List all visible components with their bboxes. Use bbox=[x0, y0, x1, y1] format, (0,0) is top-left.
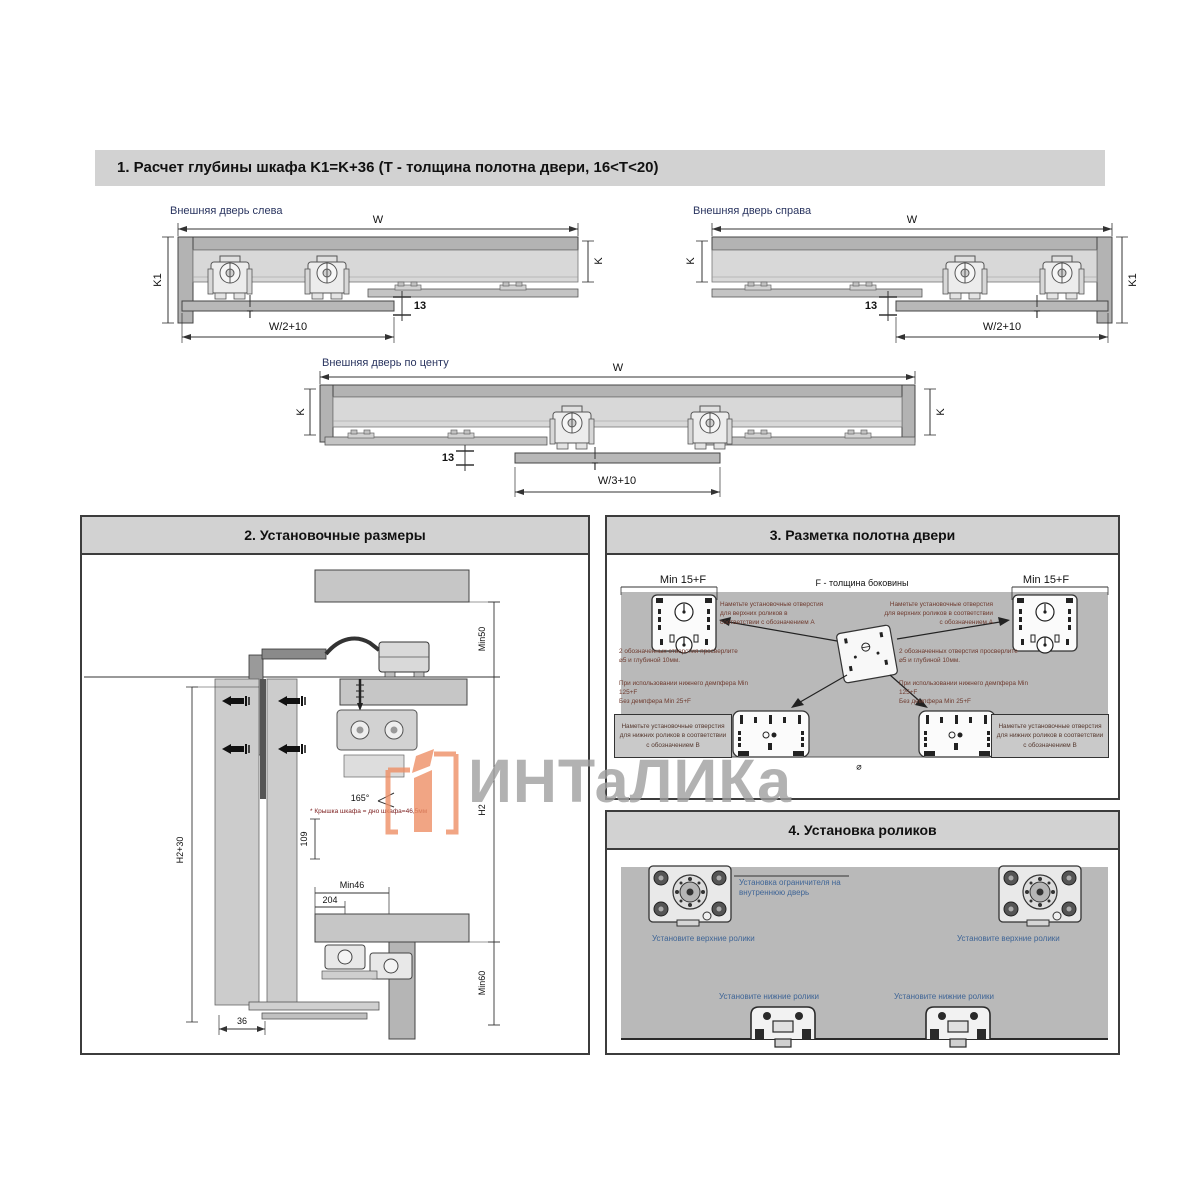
note-mark-top-left: Наметьте установочные отверстия для верх… bbox=[720, 601, 828, 628]
dim-109: 109 bbox=[299, 831, 309, 846]
section4-title: 4. Установка роликов bbox=[788, 822, 936, 838]
dim-k1: K1 bbox=[1127, 273, 1139, 286]
damper-line1: При использовании нижнего демпфера Min 1… bbox=[899, 680, 1028, 696]
dim-k: K bbox=[685, 257, 697, 264]
section4-header: 4. Установка роликов bbox=[607, 812, 1118, 850]
dim-h2-30: H2+30 bbox=[175, 837, 185, 864]
dim-min50: Min50 bbox=[477, 627, 487, 652]
section3-drawing bbox=[607, 555, 1118, 800]
dim-w2-10: W/2+10 bbox=[983, 321, 1021, 333]
dim-165: 165° bbox=[351, 793, 370, 803]
note-mark-top-right: Наметьте установочные отверстия для верх… bbox=[883, 601, 993, 628]
damper-line1: При использовании нижнего демпфера Min 1… bbox=[619, 680, 748, 696]
diagram-center-label: Внешняя дверь по центу bbox=[322, 357, 449, 369]
dim-min60: Min60 bbox=[477, 971, 487, 996]
section2-header: 2. Установочные размеры bbox=[82, 517, 588, 555]
dim-h2: H2 bbox=[477, 804, 487, 816]
section2-box: 2. Установочные размеры bbox=[80, 515, 590, 1055]
dim-13: 13 bbox=[442, 452, 454, 464]
diagram-door-right-drawing bbox=[675, 205, 1140, 363]
dim-w: W bbox=[613, 362, 623, 374]
section4-box: 4. Установка роликов Установка ограничит… bbox=[605, 810, 1120, 1055]
dim-w: W bbox=[373, 214, 383, 226]
diagram-door-right: Внешняя дверь справа W K K1 13 T W/2+10 bbox=[675, 205, 1140, 363]
section2-drawing bbox=[82, 555, 588, 1055]
section1-title: 1. Расчет глубины шкафа K1=K+36 (Т - тол… bbox=[117, 159, 659, 176]
dim-13: 13 bbox=[414, 300, 426, 312]
dim-204: 204 bbox=[322, 895, 337, 905]
upper-rollers-left: Установите верхние ролики bbox=[652, 934, 787, 944]
diagram-left-label: Внешняя дверь слева bbox=[170, 205, 282, 217]
diagram-right-label: Внешняя дверь справа bbox=[693, 205, 811, 217]
limiter-note: Установка ограничителя на внутреннюю две… bbox=[739, 878, 869, 899]
section3-header: 3. Разметка полотна двери bbox=[607, 517, 1118, 555]
dim-w3-10: W/3+10 bbox=[598, 475, 636, 487]
note-damper-right: При использовании нижнего демпфера Min 1… bbox=[899, 680, 1031, 707]
dim-min15f-right: Min 15+F bbox=[1023, 574, 1069, 586]
dim-k-left: K bbox=[295, 408, 307, 415]
f-thickness-note: F - толщина боковины bbox=[816, 578, 909, 588]
diameter-symbol: ⌀ bbox=[856, 762, 861, 773]
note-mark-bottom-left: Наметьте установочные отверстия для нижн… bbox=[614, 714, 732, 758]
section2-footnote: * Крышка шкафа = дно шкафа=46,5мм bbox=[310, 808, 427, 815]
dim-w: W bbox=[907, 214, 917, 226]
dim-k1: K1 bbox=[152, 273, 164, 286]
diagram-door-left: Внешняя дверь слева W K1 K 13 T W/2+10 bbox=[150, 205, 615, 363]
dim-t: T bbox=[592, 461, 599, 473]
dim-k: K bbox=[593, 257, 605, 264]
dim-t: T bbox=[247, 309, 254, 321]
dim-t: T bbox=[1034, 309, 1041, 321]
dim-k-right: K bbox=[935, 408, 947, 415]
lower-rollers-right: Установите нижние ролики bbox=[894, 992, 1014, 1002]
dim-36: 36 bbox=[237, 1016, 247, 1026]
dim-min46: Min46 bbox=[340, 880, 365, 890]
dim-13: 13 bbox=[865, 300, 877, 312]
note-damper-left: При использовании нижнего демпфера Min 1… bbox=[619, 680, 749, 707]
note-mark-bottom-right: Наметьте установочные отверстия для нижн… bbox=[991, 714, 1109, 758]
damper-line2: Без демпфера Min 25+F bbox=[619, 698, 691, 705]
dim-min15f-left: Min 15+F bbox=[660, 574, 706, 586]
lower-rollers-left: Установите нижние ролики bbox=[719, 992, 839, 1002]
note-drill-left: 2 обозначенных отверстия просверлите ⌀5 … bbox=[619, 648, 741, 666]
diagram-door-center: Внешняя дверь по центу W K K 13 T W/3+10 bbox=[300, 355, 945, 507]
upper-rollers-right: Установите верхние ролики bbox=[957, 934, 1092, 944]
section2-title: 2. Установочные размеры bbox=[244, 527, 425, 543]
section1-header: 1. Расчет глубины шкафа K1=K+36 (Т - тол… bbox=[95, 150, 1105, 186]
dim-w2-10: W/2+10 bbox=[269, 321, 307, 333]
damper-line2: Без демпфера Min 25+F bbox=[899, 698, 971, 705]
section3-box: 3. Разметка полотна двери bbox=[605, 515, 1120, 800]
note-drill-right: 2 обозначенных отверстия просверлите ⌀5 … bbox=[899, 648, 1024, 666]
section3-title: 3. Разметка полотна двери bbox=[770, 527, 956, 543]
diagram-door-left-drawing bbox=[150, 205, 615, 363]
mark-bottom-text: Наметьте установочные отверстия для нижн… bbox=[619, 722, 727, 750]
mark-bottom-text: Наметьте установочные отверстия для нижн… bbox=[996, 722, 1104, 750]
instruction-sheet: 1. Расчет глубины шкафа K1=K+36 (Т - тол… bbox=[0, 0, 1200, 1200]
